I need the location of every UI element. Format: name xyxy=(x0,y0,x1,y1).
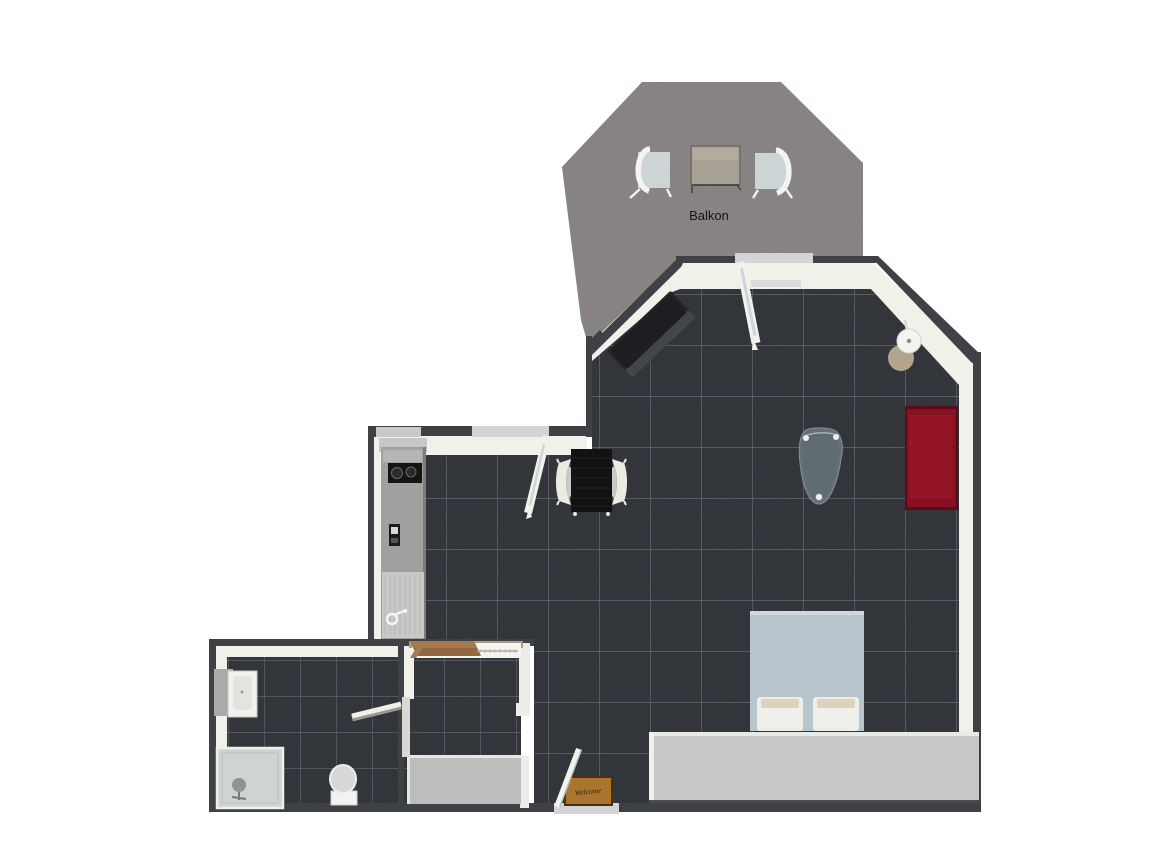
svg-text:Balkon: Balkon xyxy=(689,208,729,223)
